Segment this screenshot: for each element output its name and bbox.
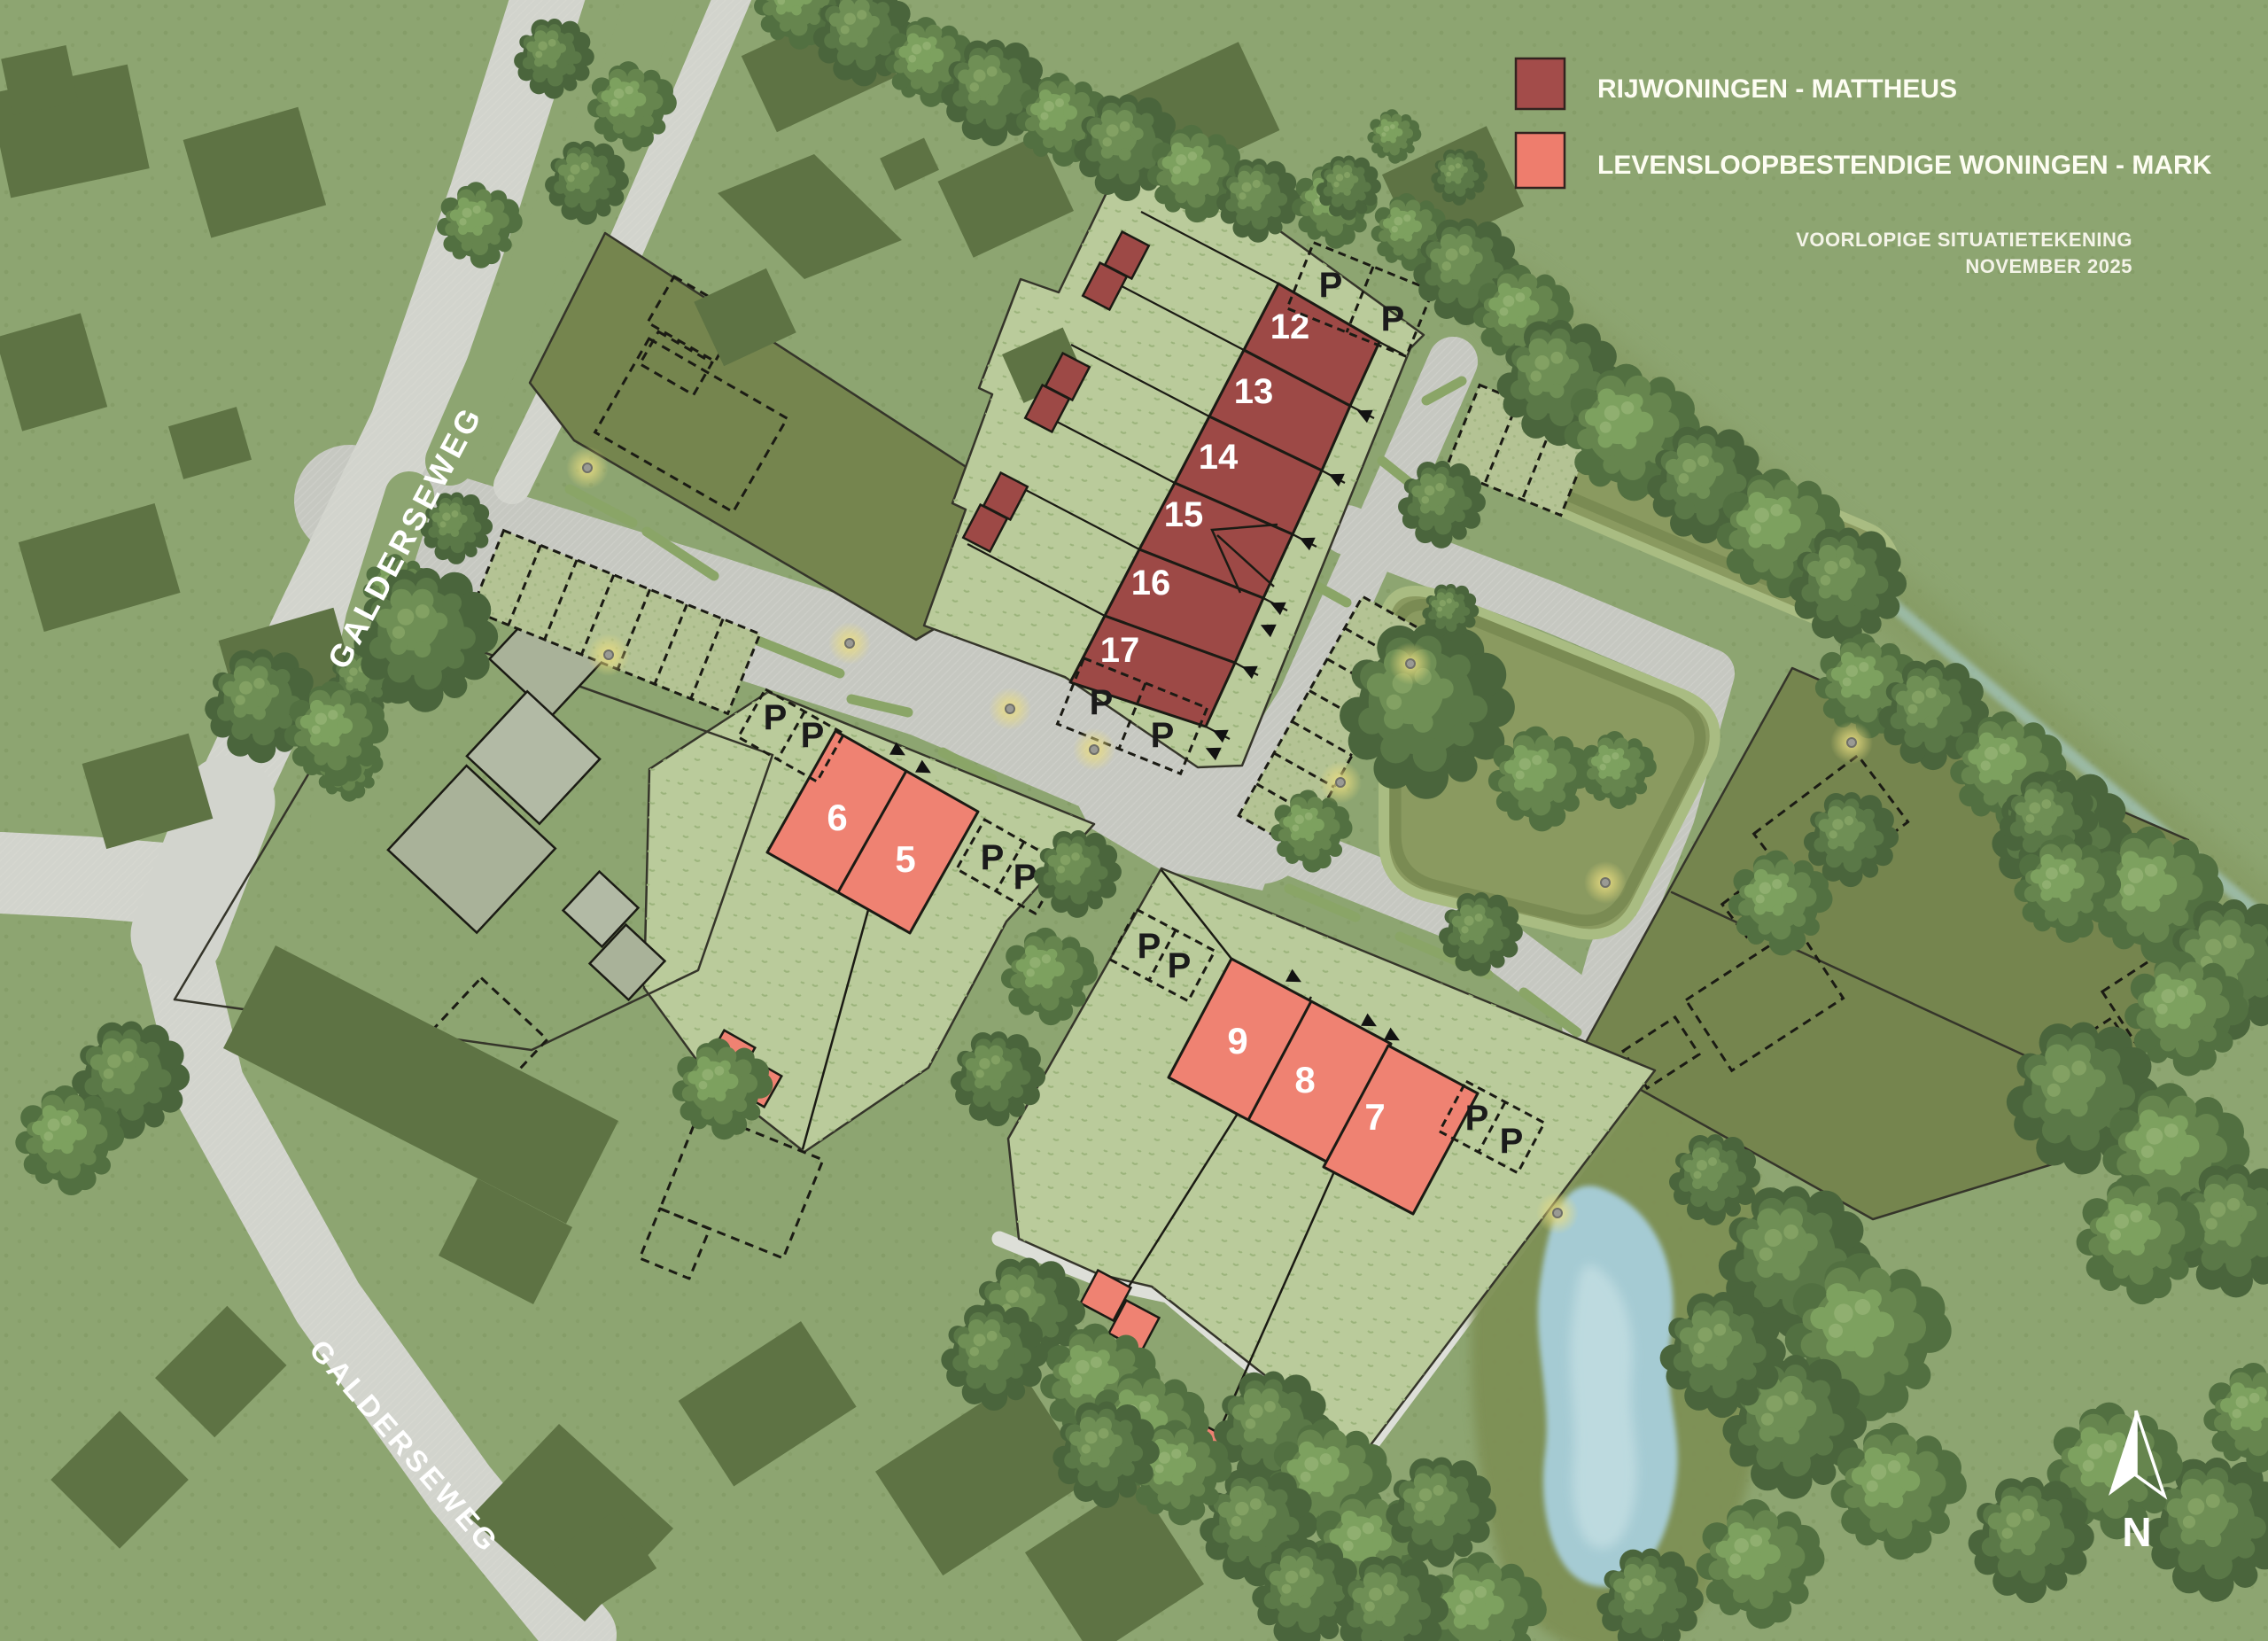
svg-text:7: 7	[1364, 1096, 1385, 1138]
svg-text:P: P	[1319, 266, 1343, 305]
svg-text:P: P	[1465, 1099, 1489, 1138]
svg-text:NOVEMBER 2025: NOVEMBER 2025	[1965, 255, 2132, 277]
svg-text:13: 13	[1234, 372, 1274, 411]
svg-text:P: P	[1168, 946, 1192, 985]
svg-text:LEVENSLOOPBESTENDIGE WONINGEN: LEVENSLOOPBESTENDIGE WONINGEN - MARK	[1597, 151, 2212, 180]
svg-text:P: P	[1151, 716, 1175, 755]
svg-text:P: P	[1500, 1122, 1524, 1161]
svg-text:P: P	[1138, 927, 1161, 966]
svg-text:12: 12	[1270, 307, 1310, 346]
svg-text:P: P	[1014, 858, 1037, 897]
svg-text:16: 16	[1131, 564, 1171, 603]
svg-text:14: 14	[1199, 438, 1239, 477]
svg-text:6: 6	[827, 797, 847, 838]
svg-text:P: P	[801, 716, 825, 755]
svg-text:N: N	[2122, 1509, 2151, 1555]
svg-text:9: 9	[1227, 1020, 1247, 1062]
svg-text:P: P	[981, 838, 1005, 877]
svg-text:P: P	[1381, 299, 1405, 338]
svg-text:8: 8	[1294, 1059, 1315, 1100]
svg-text:5: 5	[895, 838, 915, 880]
svg-text:P: P	[764, 698, 788, 737]
svg-text:P: P	[1090, 683, 1114, 722]
svg-text:17: 17	[1100, 631, 1140, 670]
svg-text:15: 15	[1164, 495, 1204, 534]
svg-text:VOORLOPIGE SITUATIETEKENING: VOORLOPIGE SITUATIETEKENING	[1796, 229, 2132, 251]
svg-text:RIJWONINGEN - MATTHEUS: RIJWONINGEN - MATTHEUS	[1597, 74, 1957, 104]
